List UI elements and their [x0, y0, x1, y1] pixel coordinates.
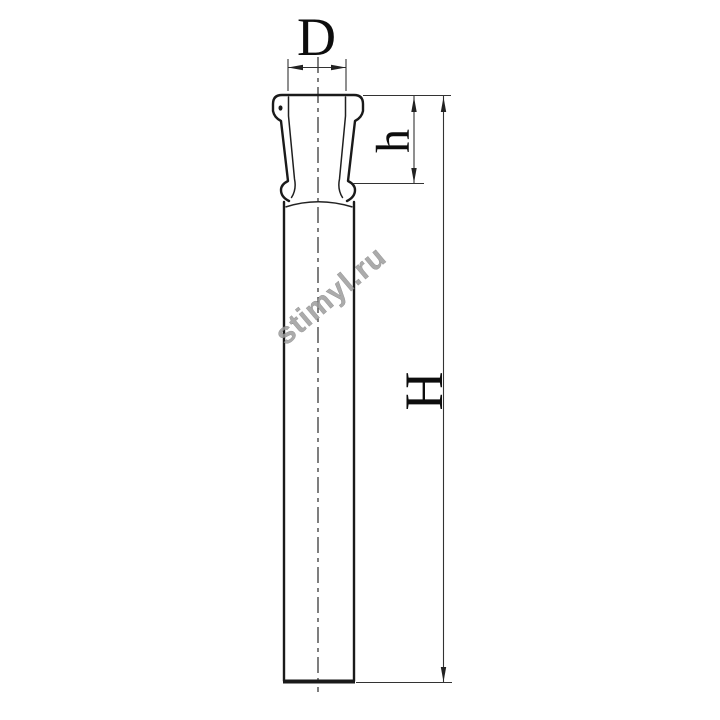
lip-detail-mark: [279, 105, 283, 110]
shoulder-arc: [286, 202, 353, 207]
h-arrow-bottom: [411, 168, 416, 183]
h-arrow-top: [411, 97, 416, 112]
tube-drawing-svg: D h H stimyl.ru: [0, 0, 720, 720]
socket-inner-wall-right: [339, 97, 346, 198]
h-total-arrow-bottom: [441, 667, 446, 682]
dimension-label-H: H: [394, 372, 454, 411]
dimension-label-D: D: [297, 7, 336, 67]
technical-drawing-canvas: D h H stimyl.ru: [0, 0, 720, 720]
socket-inner-wall-left: [289, 97, 296, 198]
dimension-label-h: h: [367, 129, 420, 153]
watermark: stimyl.ru: [269, 240, 393, 351]
h-total-arrow-top: [441, 97, 446, 112]
